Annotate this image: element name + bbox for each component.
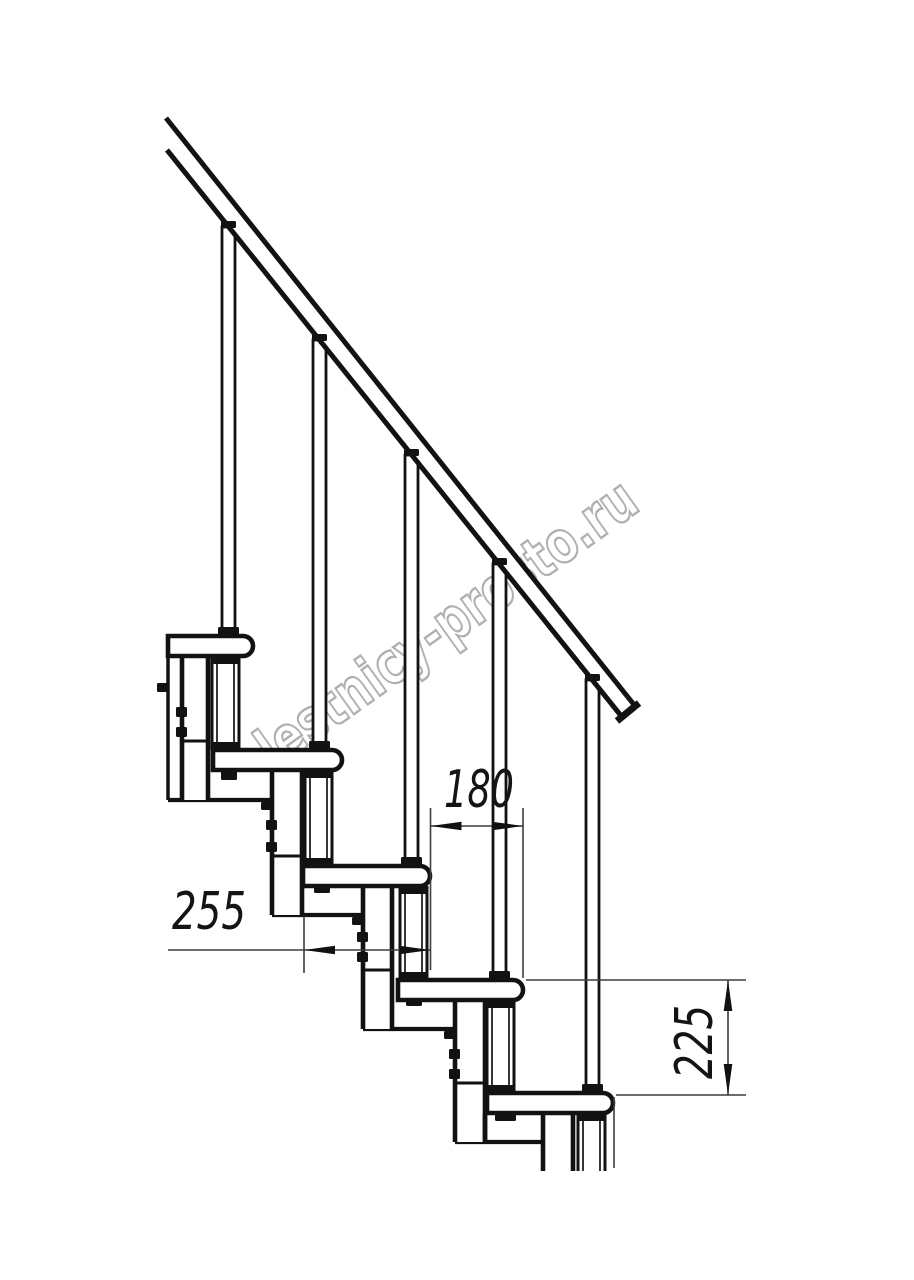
support-column xyxy=(543,1113,573,1171)
baluster-body xyxy=(405,455,418,866)
dimension-arrowhead xyxy=(492,822,523,831)
baluster xyxy=(582,680,603,1093)
column-bolt xyxy=(357,952,368,962)
column-bolt xyxy=(157,683,168,692)
baluster-bottom-clamp xyxy=(489,971,510,980)
tread-underside-stub xyxy=(314,885,330,893)
baluster-body xyxy=(586,680,599,1093)
tread-underside-stub xyxy=(495,1112,516,1121)
baluster xyxy=(401,455,422,866)
baluster xyxy=(218,227,239,636)
column-bolt xyxy=(352,917,362,925)
baluster-bottom-clamp xyxy=(309,741,330,750)
support-post xyxy=(212,656,239,750)
column-bolt xyxy=(357,932,368,942)
baluster-bottom-clamp xyxy=(582,1084,603,1093)
column-bolt xyxy=(261,802,271,810)
column-bolt xyxy=(444,1031,454,1039)
support-column xyxy=(352,886,392,1029)
dimension-label: 180 xyxy=(444,760,514,820)
tread xyxy=(213,750,342,770)
column-body xyxy=(543,1113,573,1171)
support-column xyxy=(176,656,208,800)
column-bolt xyxy=(449,1069,460,1079)
post-body xyxy=(578,1113,605,1171)
baluster-top-cap xyxy=(492,558,507,565)
column-bolt xyxy=(266,842,277,852)
column-bolt xyxy=(449,1049,460,1059)
baluster-bottom-clamp xyxy=(401,857,422,866)
support-post xyxy=(487,1000,514,1093)
dimension-label: 255 xyxy=(172,882,246,942)
baluster-body xyxy=(222,227,235,636)
dimension-180: 180 xyxy=(431,760,524,978)
support-post xyxy=(400,886,427,980)
baluster-top-cap xyxy=(221,221,236,228)
dimension-label: 225 xyxy=(665,1005,725,1079)
tread xyxy=(168,636,253,656)
column-bolt xyxy=(266,820,277,830)
baluster xyxy=(309,340,330,750)
tread-underside-stub xyxy=(221,771,237,780)
tread xyxy=(303,866,430,886)
drawing-page: lestnicy-prosto.ru 180255225 xyxy=(0,0,914,1280)
dimension-arrowhead xyxy=(304,946,335,955)
dimension-arrowhead xyxy=(431,822,462,831)
post-body xyxy=(305,770,332,866)
tread xyxy=(398,980,523,1000)
support-post xyxy=(578,1113,605,1171)
column-bolt xyxy=(176,707,187,717)
support-post xyxy=(305,770,332,866)
column-bolt xyxy=(176,727,187,737)
tread-underside-stub xyxy=(406,998,422,1006)
staircase-diagram: lestnicy-prosto.ru 180255225 xyxy=(0,0,914,1280)
baluster-top-cap xyxy=(312,334,327,341)
tread xyxy=(487,1093,613,1113)
support-column xyxy=(261,772,302,915)
baluster-top-cap xyxy=(585,674,600,681)
post-body xyxy=(487,1000,514,1093)
baluster-bottom-clamp xyxy=(218,627,239,636)
baluster-top-cap xyxy=(404,449,419,456)
baluster-body xyxy=(313,340,326,750)
support-column xyxy=(444,1000,485,1142)
post-body xyxy=(212,656,239,750)
post-body xyxy=(400,886,427,980)
